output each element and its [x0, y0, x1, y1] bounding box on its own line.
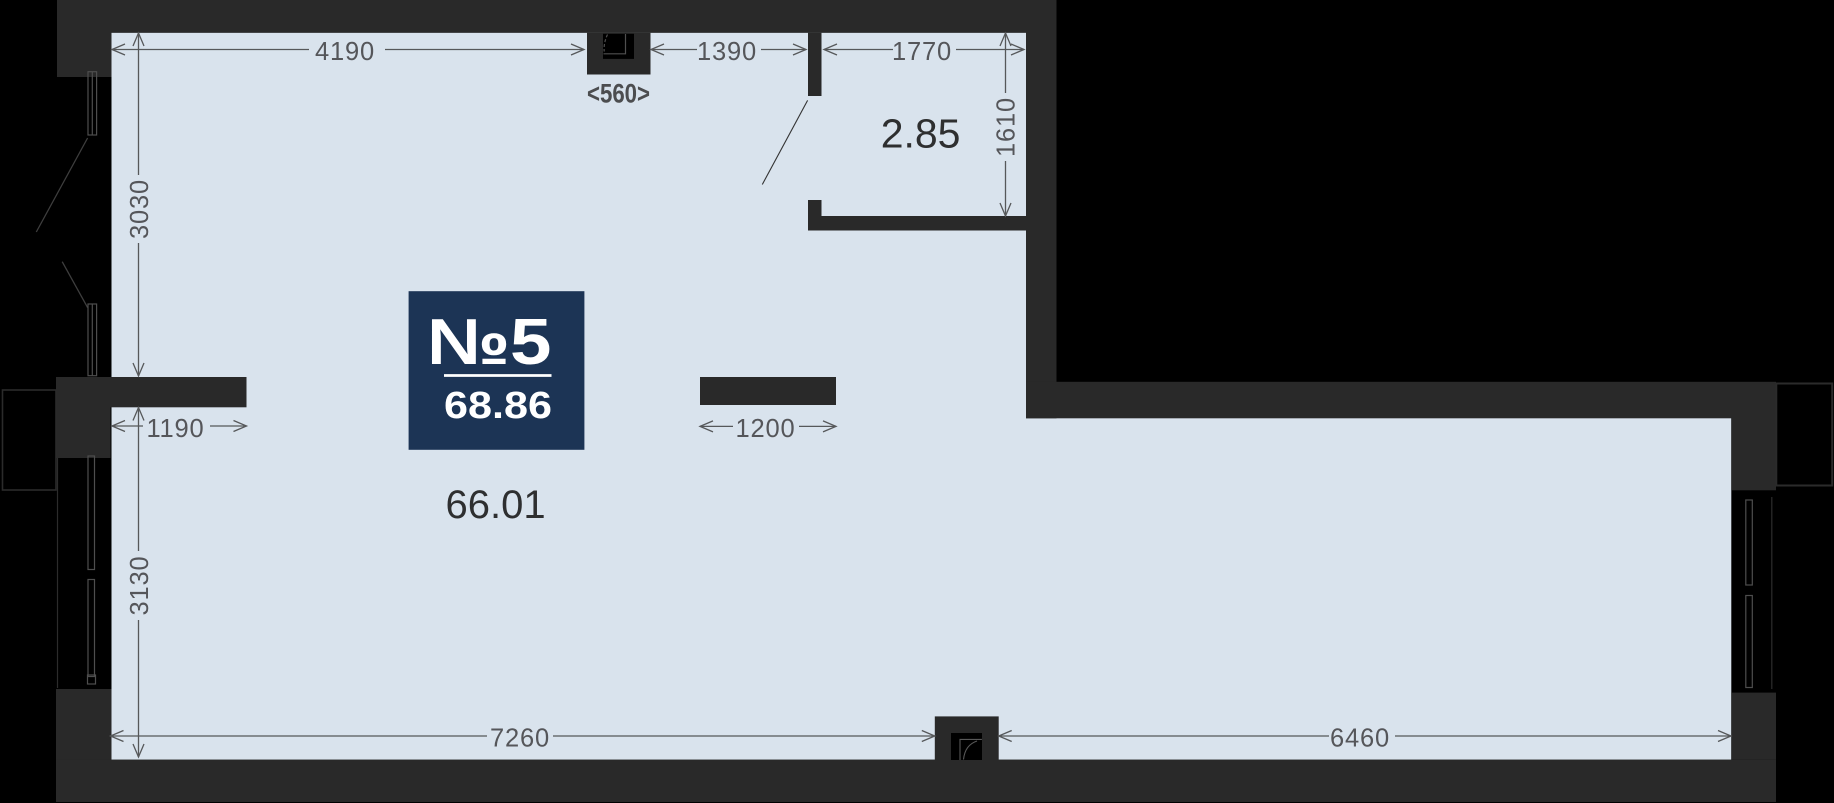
svg-text:№5: №5: [427, 305, 552, 378]
svg-text:1610: 1610: [993, 97, 1021, 157]
svg-text:7260: 7260: [490, 725, 550, 753]
svg-text:2.85: 2.85: [881, 111, 961, 157]
svg-text:6460: 6460: [1330, 725, 1390, 753]
svg-text:68.86: 68.86: [444, 385, 552, 427]
svg-text:1200: 1200: [736, 415, 796, 443]
svg-text:<560>: <560>: [587, 79, 650, 109]
svg-text:1190: 1190: [146, 415, 204, 443]
svg-text:3130: 3130: [126, 556, 154, 616]
svg-text:66.01: 66.01: [446, 483, 546, 527]
svg-text:1390: 1390: [697, 38, 757, 66]
svg-text:4190: 4190: [315, 38, 375, 66]
svg-text:3030: 3030: [126, 179, 154, 239]
svg-text:1770: 1770: [892, 38, 952, 66]
